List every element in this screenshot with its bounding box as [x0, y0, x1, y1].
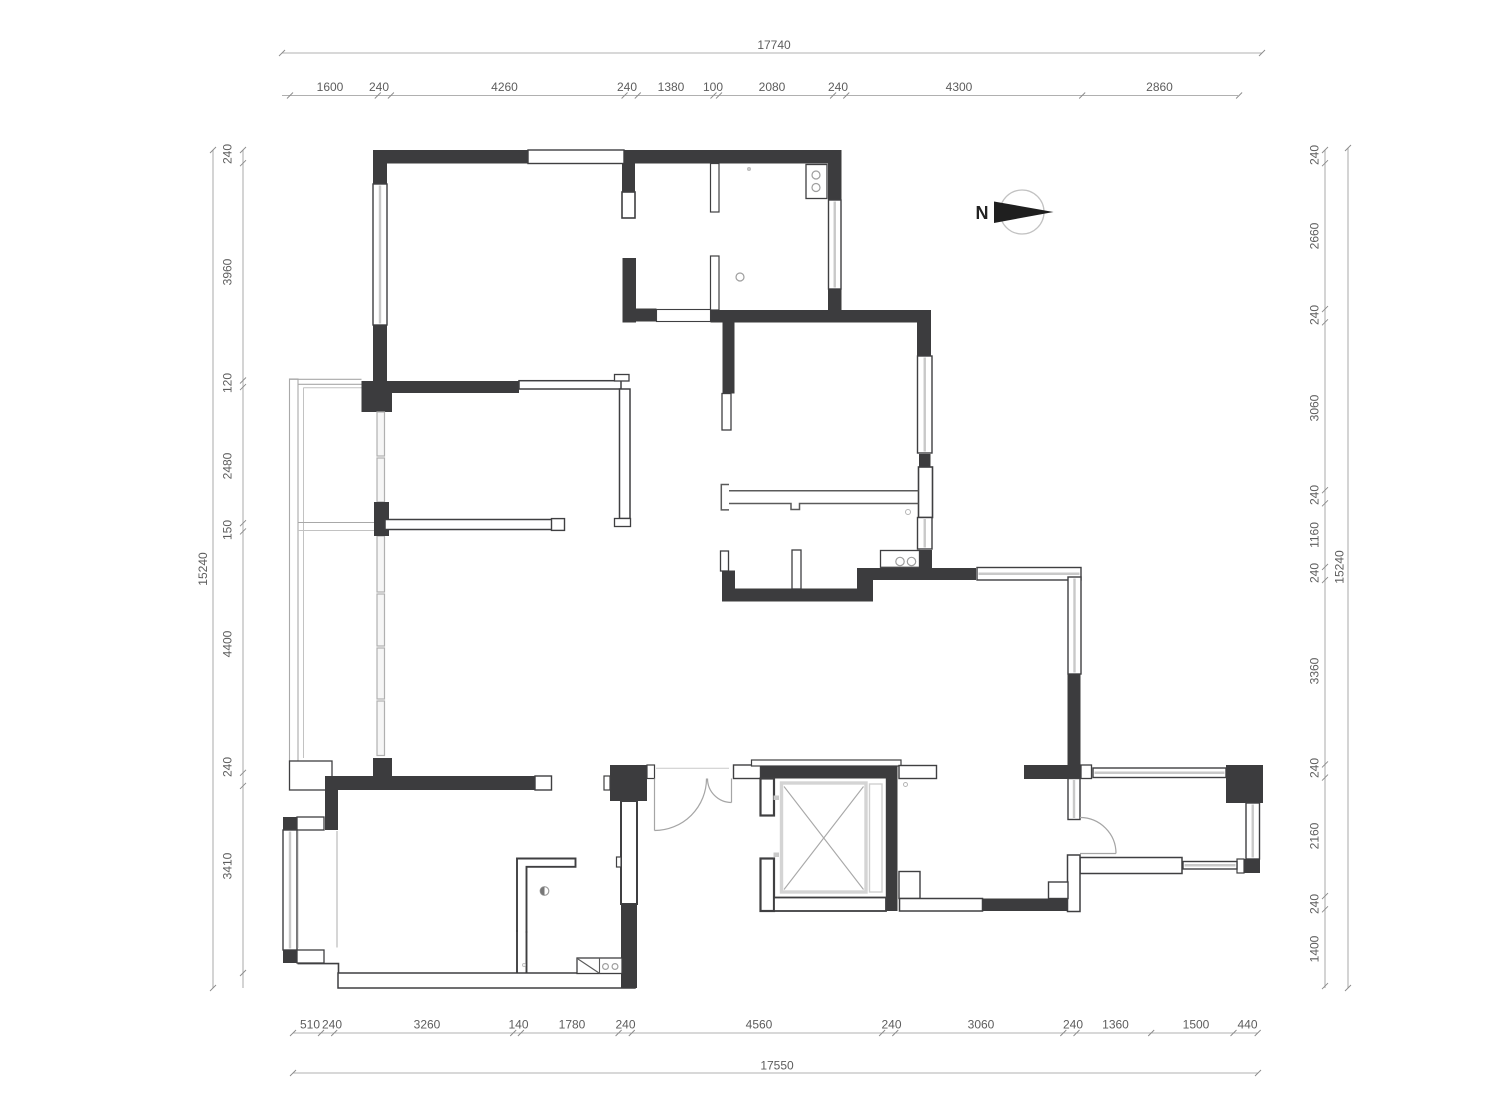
svg-text:120: 120: [221, 373, 235, 393]
svg-text:1400: 1400: [1308, 935, 1322, 962]
svg-text:3360: 3360: [1308, 657, 1322, 684]
svg-text:4400: 4400: [221, 630, 235, 657]
svg-text:4560: 4560: [746, 1018, 773, 1032]
svg-text:2080: 2080: [759, 80, 786, 94]
svg-text:15240: 15240: [196, 552, 210, 586]
svg-text:100: 100: [703, 80, 723, 94]
svg-text:1360: 1360: [1102, 1018, 1129, 1032]
svg-text:240: 240: [1308, 305, 1322, 325]
svg-text:4260: 4260: [491, 80, 518, 94]
svg-text:3060: 3060: [1308, 394, 1322, 421]
svg-text:2660: 2660: [1308, 222, 1322, 249]
svg-text:240: 240: [881, 1018, 901, 1032]
svg-text:3060: 3060: [968, 1018, 995, 1032]
svg-text:2160: 2160: [1308, 822, 1322, 849]
svg-text:240: 240: [322, 1018, 342, 1032]
svg-text:240: 240: [615, 1018, 635, 1032]
svg-text:240: 240: [221, 144, 235, 164]
svg-text:3410: 3410: [221, 852, 235, 879]
svg-text:240: 240: [617, 80, 637, 94]
svg-text:240: 240: [221, 757, 235, 777]
svg-text:3260: 3260: [414, 1018, 441, 1032]
svg-text:4300: 4300: [946, 80, 973, 94]
svg-text:17550: 17550: [760, 1059, 794, 1073]
svg-text:240: 240: [1308, 485, 1322, 505]
svg-text:1780: 1780: [559, 1018, 586, 1032]
svg-text:2860: 2860: [1146, 80, 1173, 94]
svg-text:240: 240: [1308, 758, 1322, 778]
svg-text:1500: 1500: [1183, 1018, 1210, 1032]
svg-text:1380: 1380: [658, 80, 685, 94]
svg-text:140: 140: [508, 1018, 528, 1032]
svg-text:240: 240: [1308, 894, 1322, 914]
svg-text:240: 240: [1308, 563, 1322, 583]
svg-text:1600: 1600: [317, 80, 344, 94]
svg-text:15240: 15240: [1333, 550, 1347, 584]
svg-text:1160: 1160: [1308, 522, 1322, 548]
svg-text:440: 440: [1237, 1018, 1257, 1032]
svg-text:2480: 2480: [221, 452, 235, 479]
svg-text:3960: 3960: [221, 258, 235, 285]
svg-text:150: 150: [221, 520, 235, 540]
svg-text:240: 240: [1063, 1018, 1083, 1032]
svg-text:510: 510: [300, 1018, 320, 1032]
svg-text:240: 240: [828, 80, 848, 94]
svg-text:240: 240: [1308, 145, 1322, 165]
svg-text:17740: 17740: [757, 38, 791, 52]
svg-text:240: 240: [369, 80, 389, 94]
svg-text:N: N: [976, 203, 989, 223]
